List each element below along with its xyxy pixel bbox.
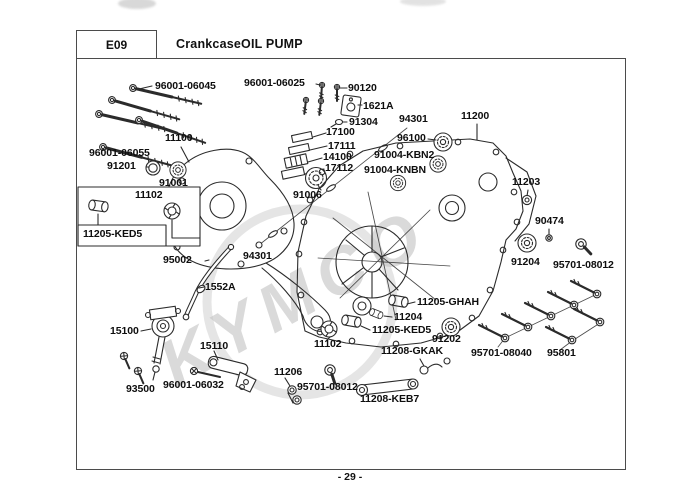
- part-label-96001-06045: 96001-06045: [155, 80, 216, 92]
- part-label-11208-keb7: 11208-KEB7: [360, 393, 419, 405]
- part-label-11206: 11206: [274, 366, 302, 378]
- part-label-90120: 90120: [348, 82, 377, 94]
- part-label-91201: 91201: [107, 160, 136, 172]
- page-number: - 29 -: [0, 471, 700, 483]
- part-label-11205-ghah: 11205-GHAH: [417, 296, 479, 308]
- part-label-91001: 91001: [159, 177, 188, 189]
- part-label-95801: 95801: [547, 347, 576, 359]
- part-label-11200: 11200: [461, 110, 489, 122]
- part-label-90474: 90474: [535, 215, 564, 227]
- part-label-11204: 11204: [394, 311, 422, 323]
- part-label-11100: 11100: [165, 132, 193, 144]
- part-label-11205-ked5: 11205-KED5: [372, 324, 431, 336]
- manual-page: E09 CrankcaseOIL PUMP KYMCO: [0, 0, 700, 495]
- part-label-96001-06025: 96001-06025: [244, 77, 305, 89]
- part-label-91004-kbn2: 91004-KBN2: [374, 149, 434, 161]
- part-label-91006: 91006: [293, 189, 322, 201]
- part-label-91204: 91204: [511, 256, 540, 268]
- part-label-11208-gkak: 11208-GKAK: [381, 345, 443, 357]
- part-label-95002: 95002: [163, 254, 192, 266]
- part-label-11203: 11203: [512, 176, 540, 188]
- part-label-15100: 15100: [110, 325, 139, 337]
- part-label-95701-08040: 95701-08040: [471, 347, 532, 359]
- part-label-17112: 17112: [325, 162, 353, 174]
- part-label-1552a: 1552A: [205, 281, 235, 293]
- part-label-96100: 96100: [397, 132, 426, 144]
- part-label-91202: 91202: [432, 333, 461, 345]
- part-label-17100: 17100: [326, 126, 355, 138]
- part-label-96001-06055: 96001-06055: [89, 147, 150, 159]
- part-label-93500: 93500: [126, 383, 155, 395]
- part-labels-layer: 96001-0604596001-06025901201621A91304943…: [0, 0, 700, 495]
- part-label-94301: 94301: [399, 113, 428, 125]
- part-label-95701-08012: 95701-08012: [553, 259, 614, 271]
- part-label-11102: 11102: [135, 189, 163, 201]
- part-label-1621a: 1621A: [363, 100, 393, 112]
- part-label-11102: 11102: [314, 338, 342, 350]
- part-label-95701-08012: 95701-08012: [297, 381, 358, 393]
- part-label-96001-06032: 96001-06032: [163, 379, 224, 391]
- part-label-94301: 94301: [243, 250, 272, 262]
- part-label-91004-knbn: 91004-KNBN: [364, 164, 426, 176]
- part-label-15110: 15110: [200, 340, 228, 352]
- part-label-11205-ked5: 11205-KED5: [83, 228, 142, 240]
